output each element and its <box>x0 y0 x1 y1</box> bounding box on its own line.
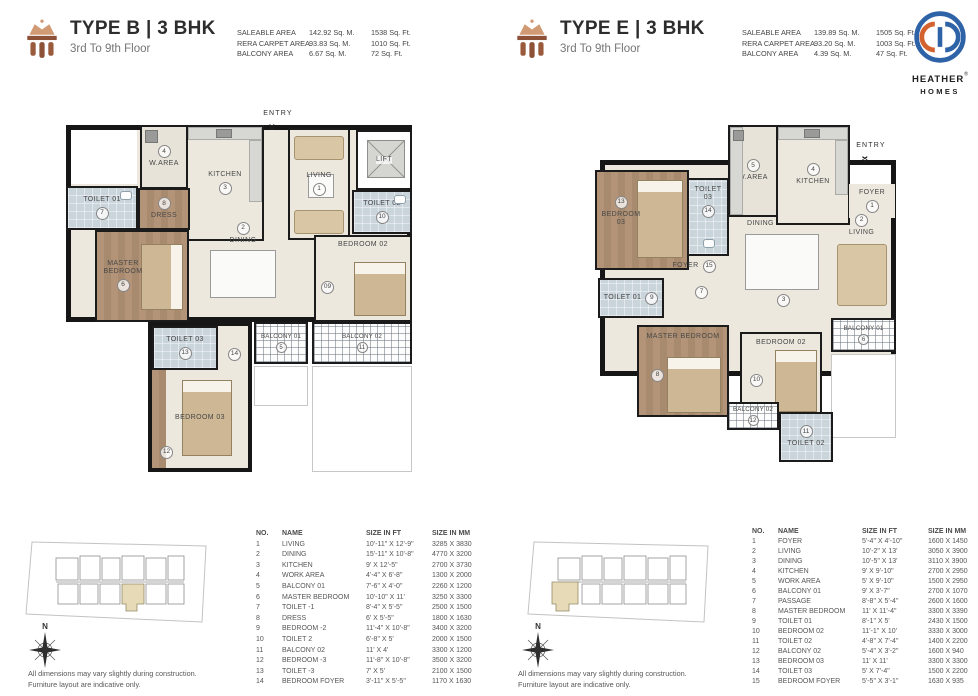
room-number: 09 <box>321 281 334 294</box>
bed-icon <box>637 180 683 258</box>
cell-no: 15 <box>752 677 778 687</box>
room-number: 8 <box>158 197 171 210</box>
cell-size-ft: 10'-2" X 13' <box>862 547 928 557</box>
cell-size-mm: 2100 X 1500 <box>432 667 486 678</box>
room-bedroom-03: BEDROOM 03 12 <box>152 370 248 468</box>
cell-name: TOILET 02 <box>778 637 862 647</box>
cell-name: BEDROOM FOYER <box>282 677 366 688</box>
lift: LIFT <box>356 130 412 190</box>
room-living-label: 2 LIVING <box>827 214 896 237</box>
room-label: TOILET 03 <box>166 336 204 344</box>
cell-name: FOYER <box>778 537 862 547</box>
cell-size-mm: 2430 X 1500 <box>928 617 978 627</box>
cell-size-ft: 10'-11" X 12'-9" <box>366 540 432 551</box>
hob-icon <box>804 129 820 138</box>
cell-size-ft: 15'-11" X 10'-8" <box>366 550 432 561</box>
room-number: 12 <box>748 415 759 426</box>
room-label: BALCONY 01 <box>261 333 301 340</box>
disclaimer-line1: All dimensions may vary slightly during … <box>28 668 197 679</box>
room-toilet-01: TOILET 01 9 <box>598 278 664 318</box>
entry-label: ENTRY <box>843 142 899 149</box>
room-master-bedroom: MASTER BEDROOM 6 <box>95 230 189 322</box>
cell-size-mm: 2700 X 3730 <box>432 561 486 572</box>
table-header-row: NO. NAME SIZE IN FT SIZE IN MM <box>752 527 978 537</box>
area-sqm: 6.67 Sq. M. <box>309 49 371 60</box>
sofa-icon <box>294 136 344 160</box>
cell-name: MASTER BEDROOM <box>282 593 366 604</box>
table-row: 7 TOILET -1 8'-4" X 5'-5" 2500 X 1500 <box>256 603 486 614</box>
room-number: 12 <box>160 446 173 459</box>
cell-size-mm: 3500 X 3200 <box>432 656 486 667</box>
cell-size-mm: 2600 X 1600 <box>928 597 978 607</box>
table-row: 1 FOYER 5'-4" X 4'-10" 1600 X 1450 <box>752 537 978 547</box>
cell-size-mm: 3400 X 3200 <box>432 624 486 635</box>
table-row: 7 PASSAGE 8'-8" X 5'-4" 2600 X 1600 <box>752 597 978 607</box>
room-toilet-02: TOILET 02 10 <box>352 190 412 234</box>
table-row: 11 BALCONY 02 11' X 4' 3300 X 1200 <box>256 646 486 657</box>
crown-icon <box>514 18 550 60</box>
room-number-dining: 3 <box>777 294 790 307</box>
table-row: 5 WORK AREA 5' X 9'-10" 1500 X 2950 <box>752 577 978 587</box>
logo-wordmark: HEATHER® HOMES <box>905 69 975 96</box>
cell-no: 4 <box>256 571 282 582</box>
cell-name: TOILET 03 <box>778 667 862 677</box>
disclaimer-line1: All dimensions may vary slightly during … <box>518 668 687 679</box>
cell-size-mm: 3330 X 3000 <box>928 627 978 637</box>
cell-name: BALCONY 01 <box>282 582 366 593</box>
compass-rose-icon: N <box>520 620 556 672</box>
cell-no: 3 <box>752 557 778 567</box>
typeE-area-info: SALEABLE AREA 139.89 Sq. M. 1505 Sq. Ft.… <box>742 28 930 60</box>
table-row: 12 BALCONY 02 5'-4" X 3'-2" 1600 X 940 <box>752 647 978 657</box>
room-label: KITCHEN <box>208 171 242 179</box>
washer-icon <box>733 130 744 141</box>
room-label: BALCONY 02 <box>342 333 382 340</box>
washer-icon <box>145 130 158 143</box>
room-label: BALCONY 02 <box>733 406 773 413</box>
room-number: 7 <box>96 207 109 220</box>
area-sqft: 1538 Sq. Ft. <box>371 28 425 39</box>
cell-name: TOILET -3 <box>282 667 366 678</box>
room-label: MASTER BEDROOM <box>639 333 727 341</box>
typeE-header: TYPE E | 3 BHK 3rd To 9th Floor <box>514 18 705 60</box>
cell-no: 12 <box>752 647 778 657</box>
sofa-icon <box>837 244 887 306</box>
cell-name: TOILET -1 <box>282 603 366 614</box>
cell-no: 3 <box>256 561 282 572</box>
col-header-no: NO. <box>256 529 282 540</box>
area-label: SALEABLE AREA <box>742 28 814 39</box>
bed-icon <box>775 350 817 412</box>
disclaimer-typeB: All dimensions may vary slightly during … <box>28 668 197 690</box>
cell-no: 1 <box>256 540 282 551</box>
cell-name: BEDROOM -3 <box>282 656 366 667</box>
room-number: 5 <box>747 159 760 172</box>
col-header-name: NAME <box>282 529 366 540</box>
room-toilet-03: TOILET 03 13 <box>152 326 218 370</box>
room-label-block: MASTER BEDROOM 6 <box>99 260 147 292</box>
table-row: 9 BEDROOM -2 11'-4" X 10'-8" 3400 X 3200 <box>256 624 486 635</box>
table-row: 8 DRESS 6' X 5'-5" 1800 X 1630 <box>256 614 486 625</box>
room-number: 6 <box>858 334 869 345</box>
open-area-below-balcony <box>831 354 896 438</box>
cell-name: BEDROOM FOYER <box>778 677 862 687</box>
cell-size-mm: 3250 X 3300 <box>432 593 486 604</box>
dimension-table-typeE: NO. NAME SIZE IN FT SIZE IN MM 1 FOYER 5… <box>752 527 978 687</box>
cell-name: BALCONY 02 <box>282 646 366 657</box>
cell-size-ft: 4'-4" X 6'-8" <box>366 571 432 582</box>
highlighted-unit <box>122 584 144 611</box>
room-label: BEDROOM 03 <box>599 211 643 228</box>
room-number: 15 <box>703 260 716 273</box>
room-label: W.AREA <box>149 160 179 168</box>
cell-size-mm: 2000 X 1500 <box>432 635 486 646</box>
room-number: 4 <box>807 163 820 176</box>
heather-homes-monogram-icon <box>913 10 967 64</box>
cell-name: WORK AREA <box>778 577 862 587</box>
cell-size-mm: 2260 X 1200 <box>432 582 486 593</box>
typeB-title-block: TYPE B | 3 BHK 3rd To 9th Floor <box>70 18 216 55</box>
cell-no: 8 <box>256 614 282 625</box>
col-header-name: NAME <box>778 527 862 537</box>
cell-size-mm: 4770 X 3200 <box>432 550 486 561</box>
area-row: SALEABLE AREA 139.89 Sq. M. 1505 Sq. Ft. <box>742 28 930 39</box>
col-header-size-ft: SIZE IN FT <box>862 527 928 537</box>
area-label: BALCONY AREA <box>742 49 814 60</box>
room-balcony-01: BALCONY 01 6 <box>831 318 896 352</box>
room-label: TOILET 01 <box>604 294 642 302</box>
cell-size-ft: 4'-8" X 7'-4" <box>862 637 928 647</box>
cell-no: 10 <box>752 627 778 637</box>
kitchen-counter <box>249 140 262 202</box>
cell-size-mm: 1300 X 2000 <box>432 571 486 582</box>
cell-name: TOILET 2 <box>282 635 366 646</box>
room-number: 10 <box>376 211 389 224</box>
room-number: 1 <box>866 200 879 213</box>
highlighted-unit <box>552 582 578 611</box>
cell-size-ft: 6' X 5'-5" <box>366 614 432 625</box>
disclaimer-line2: Furniture layout are indicative only. <box>28 679 197 690</box>
cell-size-ft: 9' X 9'-10" <box>862 567 928 577</box>
room-toilet-02: 11 TOILET 02 <box>779 412 833 462</box>
cell-size-mm: 1800 X 1630 <box>432 614 486 625</box>
area-label: RERA CARPET AREA <box>237 39 309 50</box>
void-area <box>847 165 891 185</box>
cell-size-ft: 11' X 11' <box>862 657 928 667</box>
room-living: LIVING 1 <box>288 128 350 240</box>
cell-size-ft: 9' X 12'-5" <box>366 561 432 572</box>
cell-size-ft: 11' X 4' <box>366 646 432 657</box>
sink-icon <box>120 191 132 200</box>
cell-size-mm: 1500 X 2950 <box>928 577 978 587</box>
room-foyer: FOYER 1 <box>849 184 895 218</box>
unit-subtitle: 3rd To 9th Floor <box>70 43 216 55</box>
cell-size-ft: 5'-5" X 3'-1" <box>862 677 928 687</box>
cell-size-mm: 3285 X 3830 <box>432 540 486 551</box>
cell-no: 13 <box>752 657 778 667</box>
cell-size-mm: 3300 X 1200 <box>432 646 486 657</box>
table-row: 14 TOILET 03 5' X 7'-4" 1500 X 2200 <box>752 667 978 677</box>
typeE-title-block: TYPE E | 3 BHK 3rd To 9th Floor <box>560 18 705 55</box>
registered-mark: ® <box>964 72 968 78</box>
bed-icon <box>667 357 721 413</box>
cell-no: 14 <box>256 677 282 688</box>
room-dress: 8 DRESS <box>138 188 190 230</box>
room-number: 2 <box>855 214 868 227</box>
room-number: 3 <box>219 182 232 195</box>
cell-size-mm: 1600 X 940 <box>928 647 978 657</box>
room-label: TOILET 01 <box>83 196 121 204</box>
bed-icon <box>141 244 183 310</box>
cell-name: DRESS <box>282 614 366 625</box>
room-toilet-01: TOILET 01 7 <box>66 186 138 230</box>
cell-no: 1 <box>752 537 778 547</box>
dining-table-icon <box>210 250 276 298</box>
cell-size-ft: 6'-8" X 5' <box>366 635 432 646</box>
table-row: 10 BEDROOM 02 11'-1" X 10' 3330 X 3000 <box>752 627 978 637</box>
cell-no: 5 <box>256 582 282 593</box>
area-row: RERA CARPET AREA 93.20 Sq. M. 1003 Sq. F… <box>742 39 930 50</box>
cell-name: LIVING <box>282 540 366 551</box>
bedroom-foyer-number: 14 <box>228 348 241 361</box>
room-foyer-15-label: FOYER 15 <box>661 260 727 273</box>
sink-icon <box>394 195 406 204</box>
cell-size-ft: 3'-11" X 5'-5" <box>366 677 432 688</box>
room-dining-label: 2 DINING <box>206 222 280 245</box>
cell-no: 9 <box>752 617 778 627</box>
unit-title: TYPE E | 3 BHK <box>560 18 705 40</box>
cell-no: 5 <box>752 577 778 587</box>
cell-name: BALCONY 02 <box>778 647 862 657</box>
cell-no: 9 <box>256 624 282 635</box>
cell-name: LIVING <box>778 547 862 557</box>
cell-size-ft: 11'-8" X 10'-8" <box>366 656 432 667</box>
dimension-table-typeB: NO. NAME SIZE IN FT SIZE IN MM 1 LIVING … <box>256 529 486 688</box>
table-header-row: NO. NAME SIZE IN FT SIZE IN MM <box>256 529 486 540</box>
entry-label: ENTRY <box>256 110 300 117</box>
table-row: 13 TOILET -3 7' X 5' 2100 X 1500 <box>256 667 486 678</box>
compass-north-label: N <box>42 622 48 631</box>
area-row: SALEABLE AREA 142.92 Sq. M. 1538 Sq. Ft. <box>237 28 425 39</box>
area-sqm: 4.39 Sq. M. <box>814 49 876 60</box>
cell-name: DINING <box>778 557 862 567</box>
room-number: 4 <box>158 145 171 158</box>
room-balcony-01: BALCONY 01 5 <box>254 322 308 364</box>
cell-size-ft: 5'-4" X 4'-10" <box>862 537 928 547</box>
room-label: BEDROOM 02 <box>742 339 820 347</box>
table-row: 4 KITCHEN 9' X 9'-10" 2700 X 2950 <box>752 567 978 577</box>
room-label: DRESS <box>151 212 177 220</box>
cell-size-ft: 8'-4" X 5'-5" <box>366 603 432 614</box>
typeB-area-info: SALEABLE AREA 142.92 Sq. M. 1538 Sq. Ft.… <box>237 28 425 60</box>
table-row: 12 BEDROOM -3 11'-8" X 10'-8" 3500 X 320… <box>256 656 486 667</box>
cell-size-mm: 1400 X 2200 <box>928 637 978 647</box>
cell-size-ft: 8'-8" X 5'-4" <box>862 597 928 607</box>
table-row: 2 DINING 15'-11" X 10'-8" 4770 X 3200 <box>256 550 486 561</box>
room-toilet-03: TOILET 03 14 <box>687 178 729 256</box>
typeB-header: TYPE B | 3 BHK 3rd To 9th Floor <box>24 18 216 60</box>
room-work-area: 4 W.AREA <box>140 125 188 189</box>
room-label: LIVING <box>306 172 331 180</box>
table-row: 11 TOILET 02 4'-8" X 7'-4" 1400 X 2200 <box>752 637 978 647</box>
open-area-below-balcony <box>254 366 308 406</box>
area-sqm: 93.83 Sq. M. <box>309 39 371 50</box>
room-number: 9 <box>645 292 658 305</box>
cell-no: 8 <box>752 607 778 617</box>
cell-size-ft: 8'-1" X 5' <box>862 617 928 627</box>
cell-size-mm: 3300 X 3390 <box>928 607 978 617</box>
cell-size-mm: 2700 X 1070 <box>928 587 978 597</box>
cell-no: 2 <box>256 550 282 561</box>
area-row: RERA CARPET AREA 93.83 Sq. M. 1010 Sq. F… <box>237 39 425 50</box>
room-number: 6 <box>117 279 130 292</box>
cell-name: MASTER BEDROOM <box>778 607 862 617</box>
cell-size-ft: 10'-10" X 11' <box>366 593 432 604</box>
void-area <box>71 130 137 184</box>
room-number: 14 <box>702 205 715 218</box>
cell-size-mm: 1500 X 2200 <box>928 667 978 677</box>
room-number: 8 <box>651 369 664 382</box>
area-sqm: 139.89 Sq. M. <box>814 28 876 39</box>
col-header-size-mm: SIZE IN MM <box>432 529 486 540</box>
col-header-no: NO. <box>752 527 778 537</box>
room-label: BEDROOM 02 <box>316 241 410 249</box>
table-row: 5 BALCONY 01 7'-6" X 4'-0" 2260 X 1200 <box>256 582 486 593</box>
room-label: DINING <box>230 237 257 245</box>
table-row: 10 TOILET 2 6'-8" X 5' 2000 X 1500 <box>256 635 486 646</box>
cell-no: 6 <box>752 587 778 597</box>
cell-size-mm: 2700 X 2950 <box>928 567 978 577</box>
col-header-size-ft: SIZE IN FT <box>366 529 432 540</box>
cell-size-mm: 2500 X 1500 <box>432 603 486 614</box>
cell-size-mm: 3110 X 3900 <box>928 557 978 567</box>
table-row: 3 DINING 10'-5" X 13' 3110 X 3900 <box>752 557 978 567</box>
key-plan-typeB <box>22 536 212 626</box>
cell-no: 10 <box>256 635 282 646</box>
table-row: 2 LIVING 10'-2" X 13' 3050 X 3900 <box>752 547 978 557</box>
heather-homes-logo: HEATHER® HOMES <box>905 10 975 96</box>
col-header-size-mm: SIZE IN MM <box>928 527 978 537</box>
room-label: LIVING <box>849 229 874 237</box>
cell-no: 7 <box>256 603 282 614</box>
table-row: 6 MASTER BEDROOM 10'-10" X 11' 3250 X 33… <box>256 593 486 604</box>
cell-size-mm: 1170 X 1630 <box>432 677 486 688</box>
disclaimer-typeE: All dimensions may vary slightly during … <box>518 668 687 690</box>
dining-table-icon <box>745 234 819 290</box>
floorplan-typeE: ENTRY » 5 W.AREA 4 KITCHEN FOYER 1 13 BE… <box>575 110 947 490</box>
room-number: 1 <box>313 183 326 196</box>
room-label: FOYER <box>672 262 698 270</box>
kitchen-counter <box>835 140 848 195</box>
cell-name: DINING <box>282 550 366 561</box>
hob-icon <box>216 129 232 138</box>
cell-size-ft: 7' X 5' <box>366 667 432 678</box>
logo-line2: HOMES <box>905 87 975 96</box>
key-plan-typeE <box>524 536 714 626</box>
area-sqft: 1010 Sq. Ft. <box>371 39 425 50</box>
table-row: 8 MASTER BEDROOM 11' X 11'-4" 3300 X 339… <box>752 607 978 617</box>
area-label: SALEABLE AREA <box>237 28 309 39</box>
area-row: BALCONY AREA 4.39 Sq. M. 47 Sq. Ft. <box>742 49 930 60</box>
cell-no: 4 <box>752 567 778 577</box>
room-number: 11 <box>800 425 813 438</box>
cell-size-mm: 3300 X 3300 <box>928 657 978 667</box>
unit-subtitle: 3rd To 9th Floor <box>560 43 705 55</box>
cell-name: BALCONY 01 <box>778 587 862 597</box>
room-bedroom-02: BEDROOM 02 09 <box>314 235 412 322</box>
bed-icon <box>354 262 406 316</box>
cell-size-ft: 11'-1" X 10' <box>862 627 928 637</box>
cell-name: PASSAGE <box>778 597 862 607</box>
area-label: RERA CARPET AREA <box>742 39 814 50</box>
compass-rose-icon: N <box>27 620 63 672</box>
cell-size-ft: 11' X 11'-4" <box>862 607 928 617</box>
cell-no: 12 <box>256 656 282 667</box>
disclaimer-line2: Furniture layout are indicative only. <box>518 679 687 690</box>
table-row: 4 WORK AREA 4'-4" X 6'-8" 1300 X 2000 <box>256 571 486 582</box>
cell-size-ft: 10'-5" X 13' <box>862 557 928 567</box>
cell-name: BEDROOM -2 <box>282 624 366 635</box>
room-number: 10 <box>750 374 763 387</box>
room-label: MASTER BEDROOM <box>99 260 147 277</box>
lift-label: LIFT <box>376 156 392 164</box>
compass-north-label: N <box>535 622 541 631</box>
room-number: 11 <box>357 342 368 353</box>
table-row: 14 BEDROOM FOYER 3'-11" X 5'-5" 1170 X 1… <box>256 677 486 688</box>
cell-no: 7 <box>752 597 778 607</box>
cell-no: 11 <box>256 646 282 657</box>
room-kitchen: 4 KITCHEN <box>776 125 850 225</box>
room-label: TOILET 02 <box>787 440 825 448</box>
area-sqft: 72 Sq. Ft. <box>371 49 425 60</box>
area-row: BALCONY AREA 6.67 Sq. M. 72 Sq. Ft. <box>237 49 425 60</box>
room-label: KITCHEN <box>796 178 830 186</box>
table-row: 13 BEDROOM 03 11' X 11' 3300 X 3300 <box>752 657 978 667</box>
cell-name: KITCHEN <box>778 567 862 577</box>
room-label-block: 13 BEDROOM 03 <box>599 196 643 228</box>
cell-size-ft: 9' X 3'-7" <box>862 587 928 597</box>
cell-no: 11 <box>752 637 778 647</box>
room-label: FOYER <box>859 189 885 197</box>
table-row: 3 KITCHEN 9' X 12'-5" 2700 X 3730 <box>256 561 486 572</box>
toilet-icon <box>703 239 715 248</box>
room-label-dining: DINING <box>747 220 817 228</box>
open-area-below-balcony <box>312 366 412 472</box>
cell-name: WORK AREA <box>282 571 366 582</box>
cell-size-ft: 11'-4" X 10'-8" <box>366 624 432 635</box>
table-row: 9 TOILET 01 8'-1" X 5' 2430 X 1500 <box>752 617 978 627</box>
cell-no: 6 <box>256 593 282 604</box>
room-work-area: 5 W.AREA <box>728 125 778 217</box>
entry-arrow-icon: » <box>858 156 872 161</box>
room-number: 5 <box>276 342 287 353</box>
cell-size-ft: 7'-6" X 4'-0" <box>366 582 432 593</box>
cell-name: BEDROOM 03 <box>778 657 862 667</box>
cell-size-mm: 1630 X 935 <box>928 677 978 687</box>
cell-name: BEDROOM 02 <box>778 627 862 637</box>
cell-name: KITCHEN <box>282 561 366 572</box>
sofa-icon <box>294 210 344 234</box>
room-number: 13 <box>179 347 192 360</box>
entry-arrow-icon: » <box>265 124 279 129</box>
page: { "logo":{"line1":"HEATHER","reg":"®","l… <box>0 0 978 696</box>
table-row: 6 BALCONY 01 9' X 3'-7" 2700 X 1070 <box>752 587 978 597</box>
table-row: 15 BEDROOM FOYER 5'-5" X 3'-1" 1630 X 93… <box>752 677 978 687</box>
area-sqm: 142.92 Sq. M. <box>309 28 371 39</box>
room-master-bedroom: MASTER BEDROOM 8 <box>637 325 729 417</box>
logo-line1: HEATHER <box>912 74 964 85</box>
cell-no: 2 <box>752 547 778 557</box>
